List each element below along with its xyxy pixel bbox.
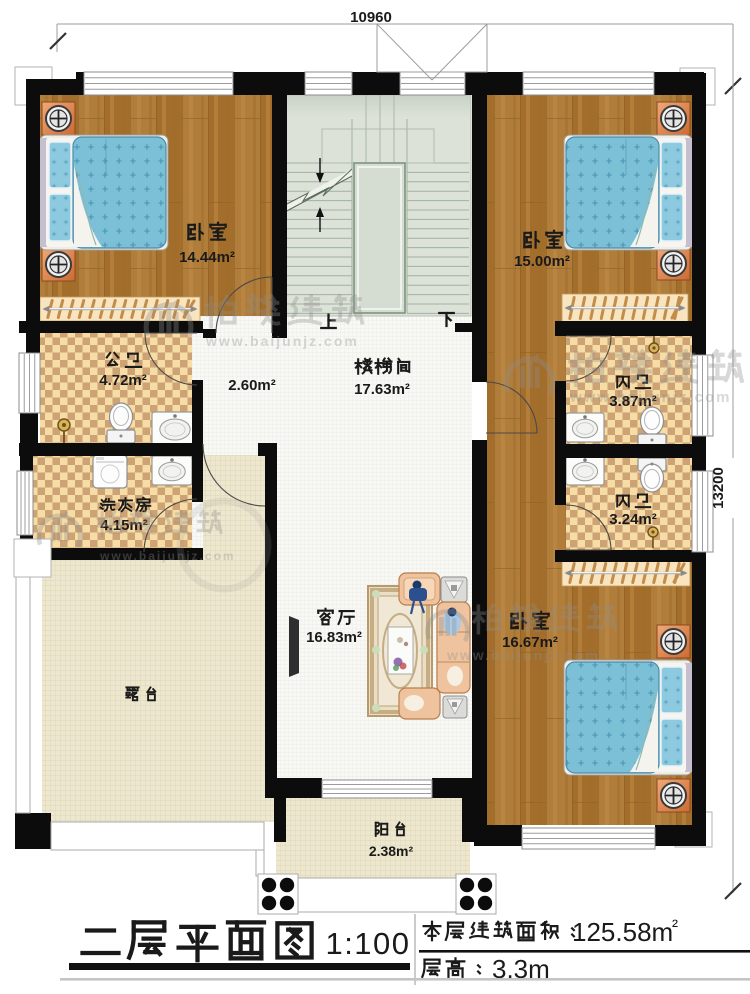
- svg-text:10960: 10960: [350, 9, 392, 26]
- svg-text:www.baijunjz.com: www.baijunjz.com: [205, 333, 359, 349]
- svg-text:3.24m²: 3.24m²: [609, 511, 657, 528]
- svg-text:2.38m²: 2.38m²: [369, 843, 414, 859]
- svg-text:16.83m²: 16.83m²: [306, 629, 362, 646]
- svg-text:15.00m²: 15.00m²: [514, 253, 570, 270]
- svg-text:www.baijunjz.com: www.baijunjz.com: [446, 647, 600, 663]
- svg-text:²: ²: [672, 916, 678, 936]
- svg-text:2.60m²: 2.60m²: [228, 377, 276, 394]
- svg-text:4.72m²: 4.72m²: [99, 372, 147, 389]
- svg-text:13200: 13200: [710, 467, 727, 509]
- svg-text:125.58m: 125.58m: [572, 917, 673, 947]
- svg-text:www.baijunjz.com: www.baijunjz.com: [569, 389, 731, 406]
- svg-text:www.baijunjz.com: www.baijunjz.com: [99, 549, 236, 563]
- svg-text:1:100: 1:100: [325, 926, 410, 961]
- svg-text:14.44m²: 14.44m²: [179, 249, 235, 266]
- svg-text:17.63m²: 17.63m²: [354, 381, 410, 398]
